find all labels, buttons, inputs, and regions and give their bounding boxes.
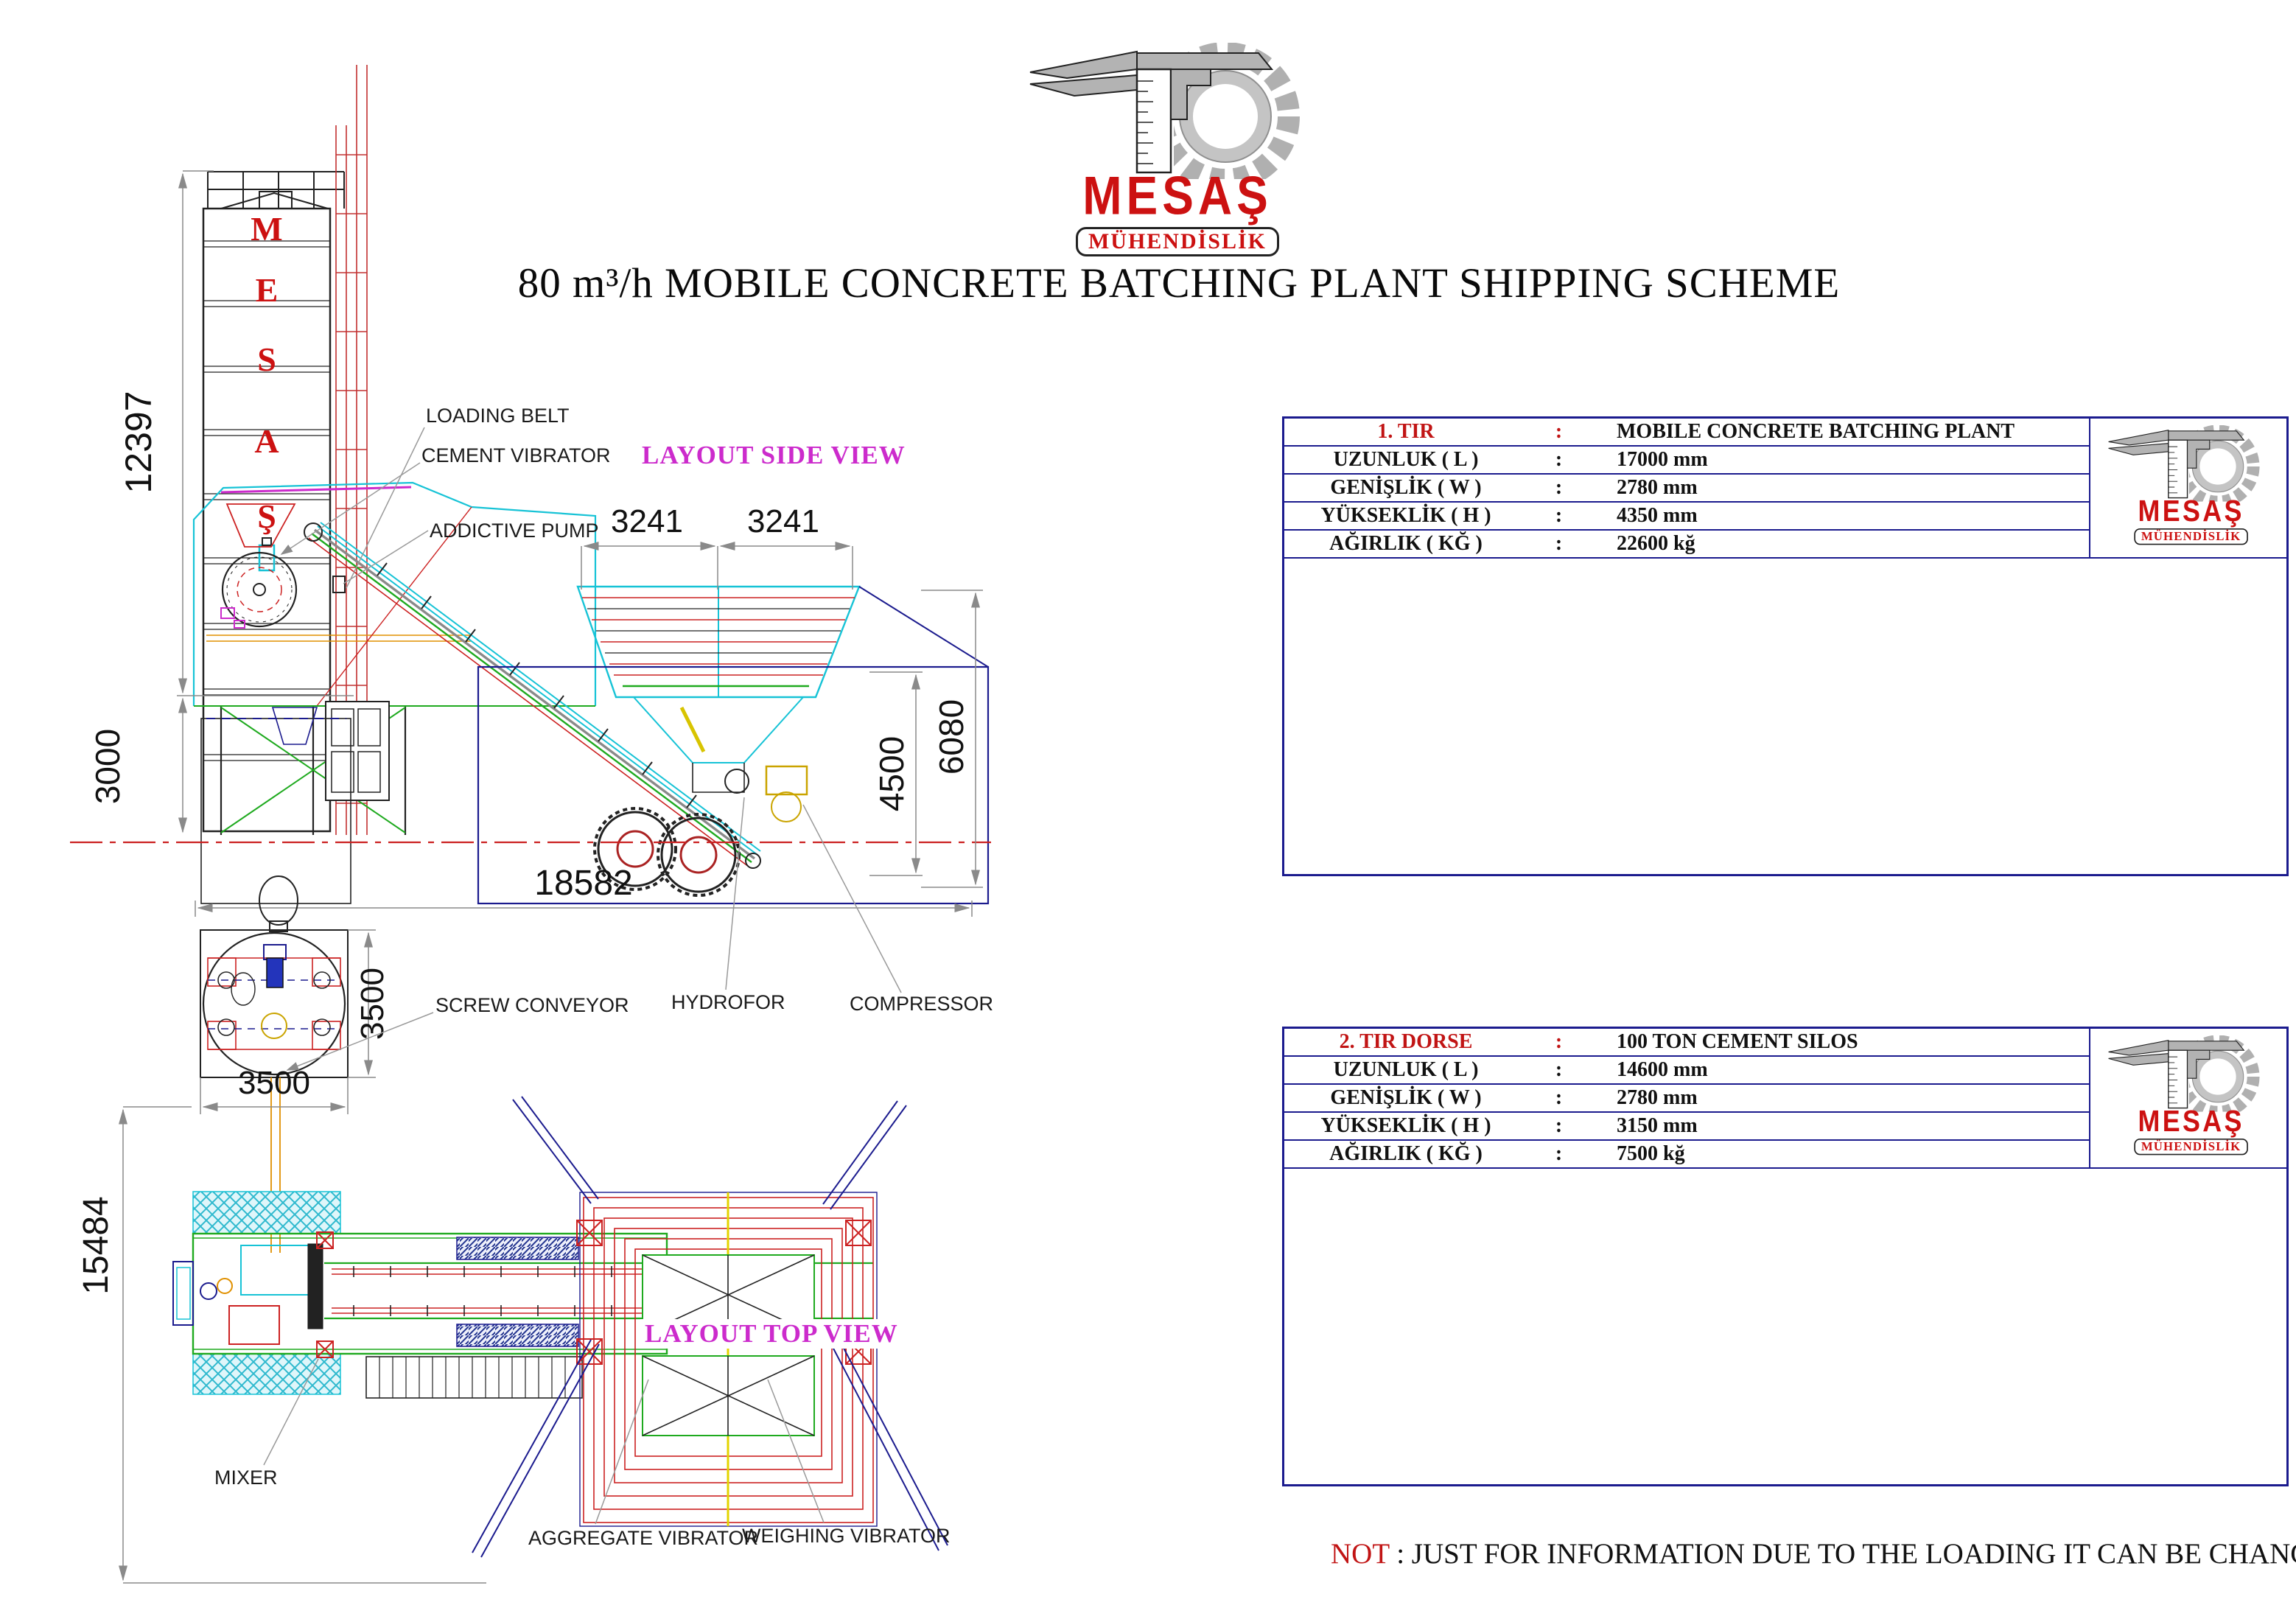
note-text: : JUST FOR INFORMATION DUE TO THE LOADIN…	[1389, 1538, 2296, 1570]
table-row: UZUNLUK ( L ) : 17000 mm	[1284, 447, 2089, 475]
callout-cement-vibrator: CEMENT VIBRATOR	[421, 444, 611, 467]
compressor-unit	[766, 766, 807, 794]
mesas-logo-panel2: MESAŞ MÜHENDİSLİK	[2104, 1035, 2278, 1155]
row-value: 22600 kğ	[1590, 532, 2089, 556]
table-row: YÜKSEKLİK ( H ) : 3150 mm	[1284, 1113, 2089, 1141]
drawing-sheet: 12397 3000 18582 3241 3241 4500 6080 M E…	[0, 0, 2296, 1622]
svg-text:3241: 3241	[611, 503, 683, 539]
svg-text:12397: 12397	[118, 391, 159, 493]
caliper-gear-icon	[2104, 1035, 2278, 1112]
row-key: GENİŞLİK ( W )	[1284, 1086, 1527, 1110]
table-row: AĞIRLIK ( KĞ ) : 7500 kğ	[1284, 1141, 2089, 1167]
brand-text: MESAŞ	[2104, 493, 2278, 528]
callout-compressor: COMPRESSOR	[850, 993, 993, 1016]
row-separator: :	[1527, 448, 1590, 472]
callout-hydrofor: HYDROFOR	[671, 991, 785, 1014]
row-value: 4350 mm	[1590, 504, 2089, 528]
svg-text:3241: 3241	[747, 503, 819, 539]
svg-text:3500: 3500	[354, 968, 391, 1040]
svg-text:E: E	[256, 271, 279, 309]
table-bottom-rule	[1284, 1167, 2286, 1169]
callout-weighing-vibrator: WEIGHING VIBRATOR	[742, 1525, 951, 1548]
silo-top-circle	[203, 933, 345, 1074]
main-conveyor	[304, 522, 760, 868]
svg-text:Ş: Ş	[257, 497, 276, 535]
spec-table-truck: 1. TIR : MOBILE CONCRETE BATCHING PLANT …	[1284, 419, 2090, 559]
callout-aggregate-vibrator: AGGREGATE VIBRATOR	[528, 1527, 758, 1550]
row-separator: :	[1527, 532, 1590, 556]
row-value: 2780 mm	[1590, 1086, 2089, 1110]
caliper-gear-icon	[2104, 425, 2278, 502]
hydrofor-tank	[725, 769, 749, 793]
row-value: 14600 mm	[1590, 1058, 2089, 1082]
row-value: 17000 mm	[1590, 448, 2089, 472]
row-separator: :	[1527, 1030, 1590, 1054]
caliper-gear-icon	[1023, 43, 1332, 179]
dim-4500: 4500	[869, 672, 923, 875]
callout-addictive-pump: ADDICTIVE PUMP	[430, 520, 599, 542]
row-value: 3150 mm	[1590, 1114, 2089, 1138]
dim-12397: 12397	[118, 171, 214, 693]
table-bottom-rule	[1284, 557, 2286, 559]
page-title: 80 m³/h MOBILE CONCRETE BATCHING PLANT S…	[516, 259, 1842, 307]
svg-text:M: M	[251, 210, 282, 248]
top-view-dimensions: 3500 3500 15484	[77, 797, 901, 1583]
mesas-logo-header: MESAŞ MÜHENDİSLİK	[1023, 43, 1332, 256]
plant-deck	[193, 1234, 667, 1354]
row-separator: :	[1527, 1114, 1590, 1138]
note-prefix: NOT	[1331, 1538, 1389, 1570]
row-separator: :	[1527, 1058, 1590, 1082]
table-row: 1. TIR : MOBILE CONCRETE BATCHING PLANT	[1284, 419, 2089, 447]
table-row: GENİŞLİK ( W ) : 2780 mm	[1284, 1085, 2089, 1113]
row-separator: :	[1527, 1086, 1590, 1110]
callout-screw-conveyor: SCREW CONVEYOR	[435, 994, 629, 1017]
row-separator: :	[1527, 420, 1590, 444]
row-key: UZUNLUK ( L )	[1284, 1058, 1527, 1082]
dim-15484: 15484	[77, 1107, 486, 1583]
svg-text:3000: 3000	[88, 729, 127, 804]
spec-table-trailer: 2. TIR DORSE : 100 TON CEMENT SILOS UZUN…	[1284, 1029, 2090, 1169]
aggregate-hopper	[578, 587, 859, 792]
row-key: 2. TIR DORSE	[1284, 1030, 1527, 1054]
brand-subtitle: MÜHENDİSLİK	[1076, 227, 1279, 256]
callout-mixer: MIXER	[214, 1467, 278, 1489]
svg-text:6080: 6080	[932, 699, 970, 775]
callout-loading-belt: LOADING BELT	[426, 405, 570, 427]
dim-3500-v: 3500	[348, 930, 391, 1077]
row-separator: :	[1527, 504, 1590, 528]
brand-subtitle: MÜHENDİSLİK	[2134, 1139, 2248, 1155]
brand-subtitle: MÜHENDİSLİK	[2134, 528, 2248, 545]
control-cabinet	[326, 702, 389, 800]
side-view-label: LAYOUT SIDE VIEW	[637, 441, 910, 470]
weighing-hopper	[634, 697, 803, 763]
dim-3500-h: 3500	[200, 1065, 348, 1114]
row-value: 100 TON CEMENT SILOS	[1590, 1030, 2089, 1054]
row-value: 2780 mm	[1590, 476, 2089, 500]
platform-grating-top	[193, 1192, 340, 1234]
table-row: 2. TIR DORSE : 100 TON CEMENT SILOS	[1284, 1029, 2089, 1057]
mesas-logo-panel1: MESAŞ MÜHENDİSLİK	[2104, 425, 2278, 545]
stairs-top-view	[366, 1357, 582, 1398]
row-key: YÜKSEKLİK ( H )	[1284, 1114, 1527, 1138]
brand-text: MESAŞ	[2104, 1103, 2278, 1139]
dim-18582: 18582	[195, 864, 972, 917]
dim-3241-right: 3241	[721, 503, 853, 590]
side-view-drawing	[70, 65, 991, 903]
row-key: YÜKSEKLİK ( H )	[1284, 504, 1527, 528]
table-row: GENİŞLİK ( W ) : 2780 mm	[1284, 475, 2089, 503]
row-key: AĞIRLIK ( KĞ )	[1284, 1142, 1527, 1166]
addictive-pump-device	[333, 576, 345, 592]
svg-text:4500: 4500	[872, 736, 911, 811]
top-view-label: LAYOUT TOP VIEW	[640, 1319, 903, 1349]
mixer-top	[308, 1244, 323, 1329]
svg-text:S: S	[257, 340, 276, 378]
row-key: 1. TIR	[1284, 420, 1527, 444]
row-separator: :	[1527, 476, 1590, 500]
svg-text:15484: 15484	[77, 1196, 116, 1294]
table-row: UZUNLUK ( L ) : 14600 mm	[1284, 1057, 2089, 1085]
dim-3241-left: 3241	[581, 503, 718, 590]
footer-note: NOT : JUST FOR INFORMATION DUE TO THE LO…	[1331, 1537, 2296, 1570]
row-value: 7500 kğ	[1590, 1142, 2089, 1166]
svg-text:3500: 3500	[238, 1065, 310, 1101]
row-key: AĞIRLIK ( KĞ )	[1284, 532, 1527, 556]
screw-conveyor-top	[267, 958, 283, 987]
table-row: AĞIRLIK ( KĞ ) : 22600 kğ	[1284, 531, 2089, 557]
row-key: UZUNLUK ( L )	[1284, 448, 1527, 472]
table-row: YÜKSEKLİK ( H ) : 4350 mm	[1284, 503, 2089, 531]
svg-text:18582: 18582	[534, 864, 632, 903]
svg-text:A: A	[254, 422, 279, 460]
row-key: GENİŞLİK ( W )	[1284, 476, 1527, 500]
row-value: MOBILE CONCRETE BATCHING PLANT	[1590, 420, 2089, 444]
silo-vent	[259, 876, 298, 925]
brand-text: MESAŞ	[1023, 164, 1332, 226]
top-view-drawing: 3500 3500 15484	[77, 797, 948, 1583]
row-separator: :	[1527, 1142, 1590, 1166]
